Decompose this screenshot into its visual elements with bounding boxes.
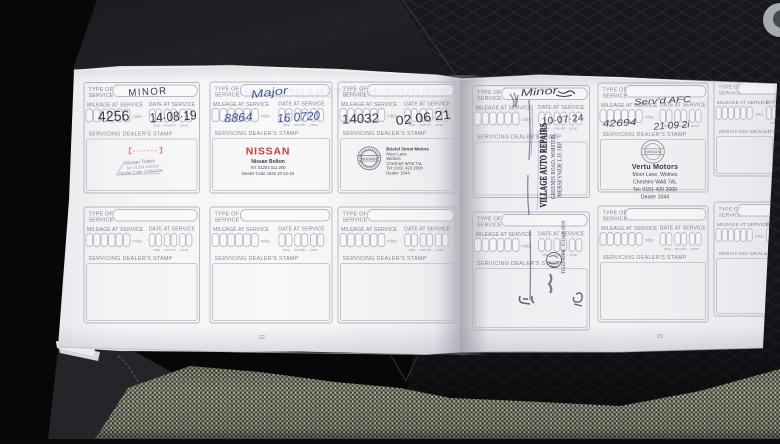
svg-text:miles: miles: [521, 244, 531, 249]
svg-text:day - month - year: day - month - year: [409, 247, 445, 252]
svg-text:Dealer Code 1932 10-12-19: Dealer Code 1932 10-12-19: [242, 171, 295, 176]
svg-text:MILEAGE AT SERVICE: MILEAGE AT SERVICE: [87, 227, 144, 233]
svg-text:Cheshire WA8 7AL: Cheshire WA8 7AL: [633, 180, 677, 186]
svg-text:miles: miles: [755, 235, 764, 239]
svg-text:SERVICING DEALER'S STAMP: SERVICING DEALER'S STAMP: [215, 256, 299, 262]
svg-text:miles: miles: [132, 239, 142, 244]
svg-text:miles: miles: [645, 238, 655, 243]
svg-text:SERVICING DEALER'S STAMP: SERVICING DEALER'S STAMP: [215, 131, 299, 137]
svg-text:Moor Lane, Widnes: Moor Lane, Widnes: [633, 172, 678, 178]
svg-text:miles: miles: [261, 239, 271, 244]
svg-text:SERVICE: SERVICE: [477, 96, 502, 102]
svg-text:SERVICE: SERVICE: [89, 218, 114, 224]
svg-text:DATE AT SERVICE: DATE AT SERVICE: [149, 227, 196, 233]
svg-text:MILEAGE AT SERVICE: MILEAGE AT SERVICE: [213, 227, 270, 233]
svg-text:MILEAGE AT SERVICE: MILEAGE AT SERVICE: [601, 226, 658, 232]
svg-text:SERVICING DEALER'S STAMP: SERVICING DEALER'S STAMP: [603, 255, 687, 261]
svg-text:miles: miles: [755, 113, 764, 117]
svg-text:DATE AT SERVICE: DATE AT SERVICE: [660, 226, 707, 232]
svg-text:DATE AT SERVICE: DATE AT SERVICE: [278, 227, 325, 233]
svg-text:DATE AT SERVICE: DATE AT SERVICE: [538, 105, 585, 111]
svg-text:SERVICE: SERVICE: [215, 218, 240, 224]
svg-text:miles: miles: [645, 115, 655, 120]
svg-text:MERSEYSIDE L35 3RF: MERSEYSIDE L35 3RF: [558, 141, 564, 197]
svg-text:MILEAGE AT SERVICE: MILEAGE AT SERVICE: [717, 222, 769, 228]
svg-text:SERVICE: SERVICE: [603, 217, 628, 223]
svg-text:Vertu Motors: Vertu Motors: [632, 162, 678, 171]
svg-text:SERVICE: SERVICE: [343, 93, 368, 99]
svg-text:MILEAGE AT SERVICE: MILEAGE AT SERVICE: [341, 227, 398, 233]
svg-text:MILEAGE AT SERVICE: MILEAGE AT SERVICE: [341, 102, 398, 108]
svg-text:day - month - year: day - month - year: [153, 247, 189, 252]
svg-text:DATE AT SERVICE: DATE AT SERVICE: [278, 102, 325, 108]
svg-text:Tel: 0151 420 2000: Tel: 0151 420 2000: [633, 187, 677, 193]
svg-text:MILEAGE AT SERVICE: MILEAGE AT SERVICE: [476, 232, 533, 238]
svg-text:MINOR: MINOR: [128, 86, 168, 99]
svg-text:SERVICING DEALER'S STAMP: SERVICING DEALER'S STAMP: [343, 256, 427, 262]
svg-text:Dealer 1044: Dealer 1044: [386, 171, 410, 176]
svg-text:SERVICE: SERVICE: [477, 223, 502, 229]
svg-text:day - month - year: day - month - year: [664, 246, 700, 251]
svg-text:TELEPHONE: 051-426 6939: TELEPHONE: 051-426 6939: [562, 220, 567, 274]
svg-text:14032: 14032: [342, 110, 380, 126]
svg-text:MILEAGE AT SERVICE: MILEAGE AT SERVICE: [717, 100, 769, 106]
svg-text:miles: miles: [132, 114, 142, 119]
svg-text:MILEAGE AT SERVICE: MILEAGE AT SERVICE: [476, 106, 533, 112]
svg-text:Dealer 1044: Dealer 1044: [641, 194, 669, 200]
svg-text:SERVICING DEALER'S STAMP: SERVICING DEALER'S STAMP: [603, 132, 687, 138]
svg-text:SERVICING DEALER'S STAMP: SERVICING DEALER'S STAMP: [89, 256, 173, 262]
svg-text:VILLAGE AUTO REPAIRS: VILLAGE AUTO REPAIRS: [539, 124, 550, 208]
svg-text:SERVICE: SERVICE: [89, 93, 114, 99]
svg-text:Tel: 01204 511 000: Tel: 01204 511 000: [250, 165, 286, 170]
svg-text:4256: 4256: [98, 108, 130, 125]
svg-text:NISSAN: NISSAN: [645, 149, 661, 154]
svg-text:SERVICE: SERVICE: [603, 94, 628, 100]
svg-text:SERVICE: SERVICE: [215, 93, 240, 99]
svg-text:miles: miles: [387, 239, 397, 244]
svg-text:SERVICING DEALER'S STAMP: SERVICING DEALER'S STAMP: [719, 129, 780, 135]
svg-text:GREENES ROAD, WHISTON,: GREENES ROAD, WHISTON,: [551, 133, 557, 199]
svg-text:MILEAGE AT SERVICE: MILEAGE AT SERVICE: [213, 102, 270, 108]
svg-text:DATE AT SERVICE: DATE AT SERVICE: [404, 227, 451, 233]
svg-text:day - month - year: day - month - year: [283, 247, 319, 252]
svg-text:MILEAGE AT SERVICE: MILEAGE AT SERVICE: [87, 103, 144, 109]
svg-text:miles: miles: [261, 114, 271, 119]
svg-text:NISSAN: NISSAN: [361, 156, 377, 161]
svg-text:8864: 8864: [224, 110, 254, 125]
svg-text:SERVICE: SERVICE: [343, 218, 368, 224]
svg-text:SERVICING DEALER'S STAMP: SERVICING DEALER'S STAMP: [477, 261, 561, 267]
svg-text:SERVICING DEALER'S STAMP: SERVICING DEALER'S STAMP: [89, 132, 173, 138]
svg-text:42694: 42694: [602, 117, 637, 130]
svg-text:SERVICING DEALER'S STAMP: SERVICING DEALER'S STAMP: [343, 131, 427, 137]
svg-text:NISSAN: NISSAN: [246, 146, 290, 158]
